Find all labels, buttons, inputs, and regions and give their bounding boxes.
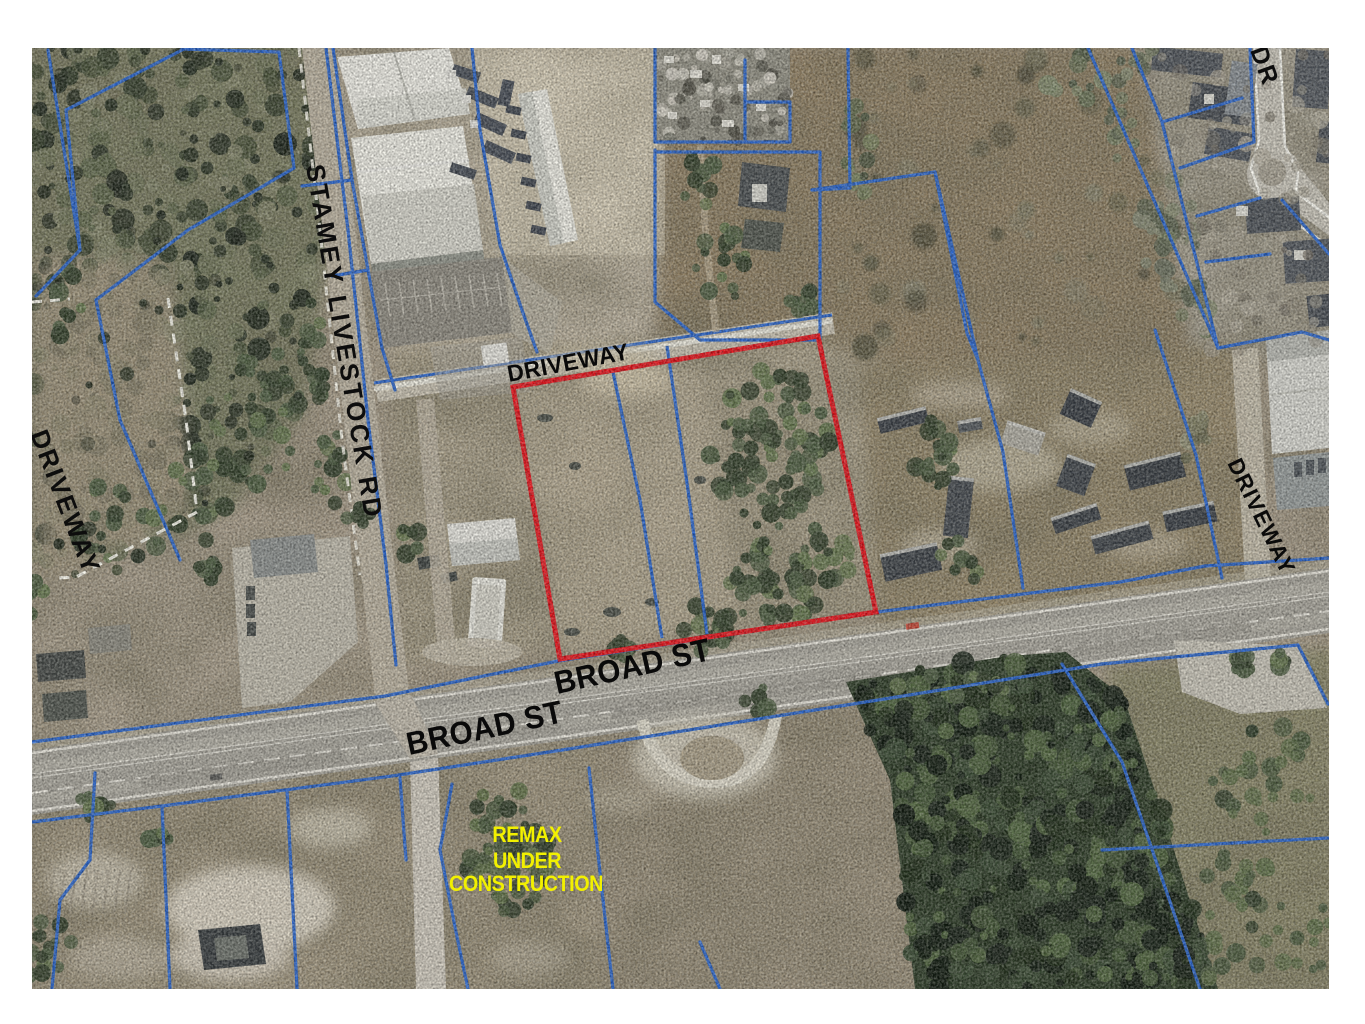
svg-text:REMAX: REMAX — [492, 823, 562, 847]
svg-text:CONSTRUCTION: CONSTRUCTION — [449, 872, 603, 896]
svg-text:UNDER: UNDER — [493, 849, 561, 873]
